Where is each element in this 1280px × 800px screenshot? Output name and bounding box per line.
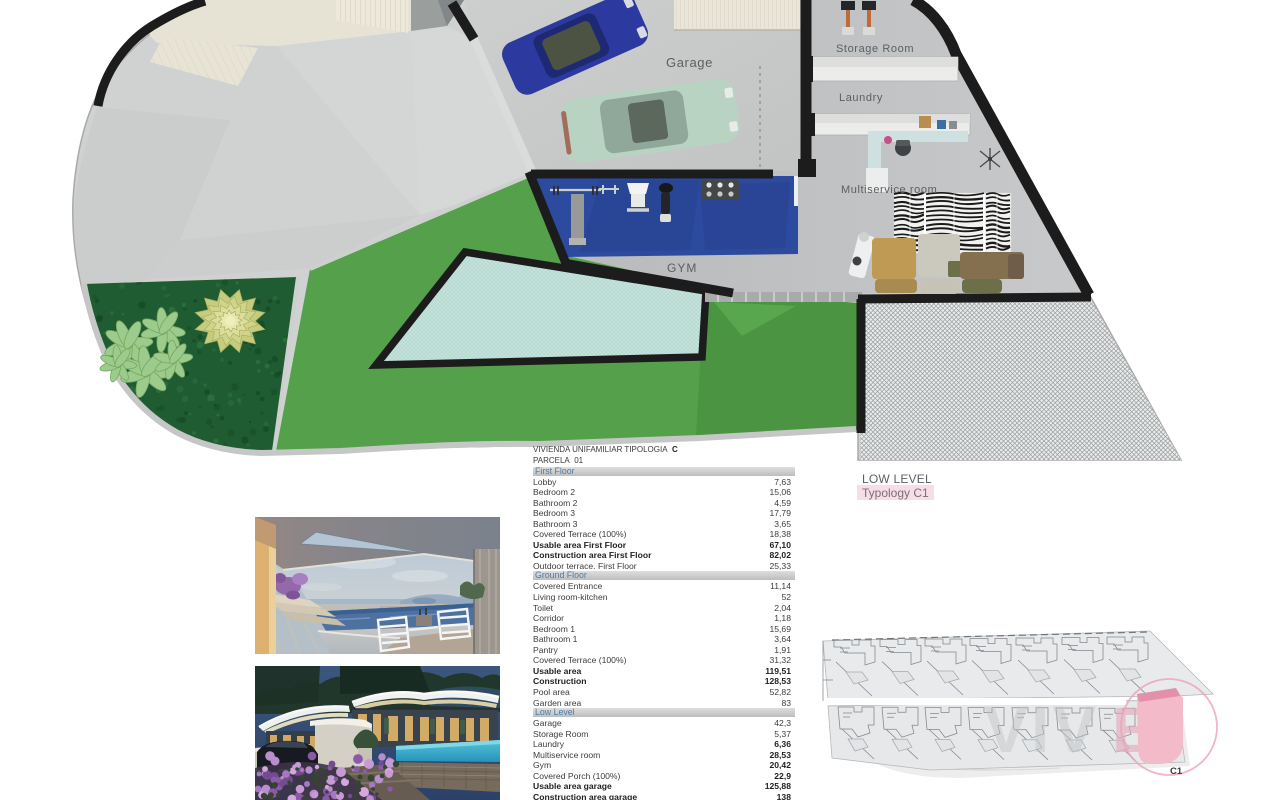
svg-text:C1: C1 [1170,766,1183,777]
svg-text:Garage: Garage [666,55,713,70]
svg-text:Laundry: Laundry [839,92,883,104]
svg-text:Storage Room: Storage Room [836,43,914,55]
svg-text:Typology C1: Typology C1 [862,486,929,500]
svg-text:LOW LEVEL: LOW LEVEL [862,472,932,486]
svg-text:Multiservice room: Multiservice room [841,184,937,196]
svg-text:GYM: GYM [667,261,697,275]
svg-text:VIV: VIV [984,692,1099,766]
